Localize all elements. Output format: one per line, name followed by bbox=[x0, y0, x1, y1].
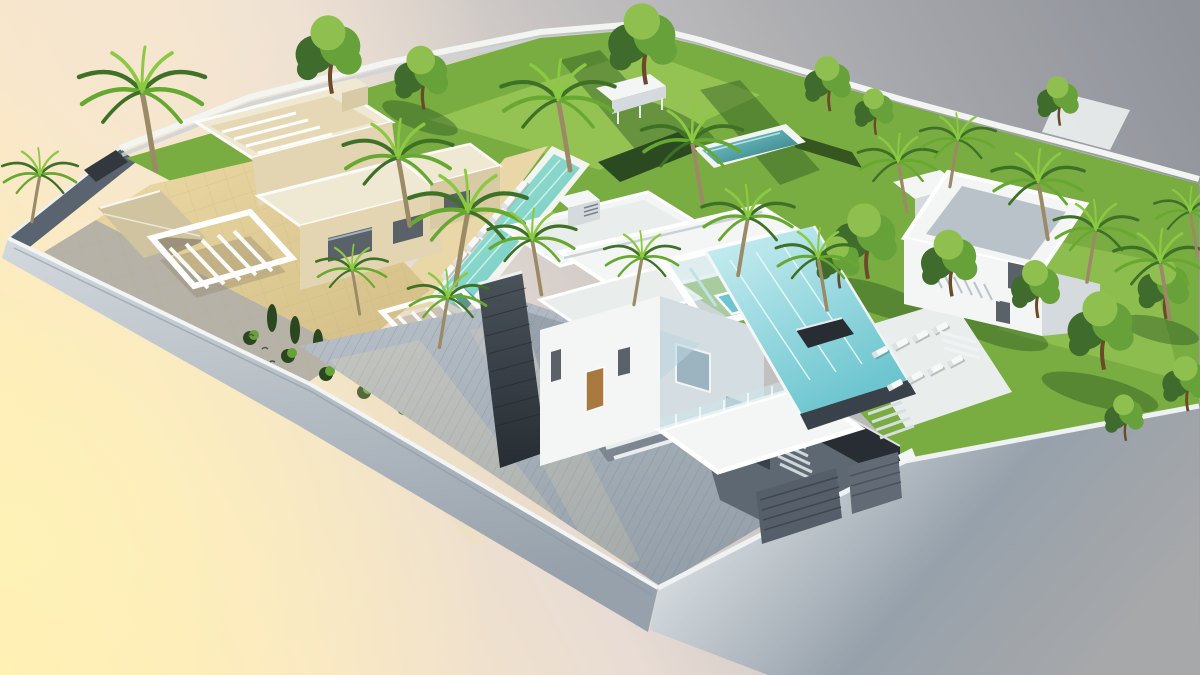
window bbox=[618, 347, 630, 376]
shrubs-part bbox=[267, 304, 277, 332]
window bbox=[996, 300, 1010, 324]
front-door bbox=[586, 367, 604, 412]
architectural-render bbox=[0, 0, 1200, 675]
shrubs-part bbox=[290, 316, 300, 344]
render-canvas bbox=[0, 0, 1200, 675]
window bbox=[551, 349, 561, 382]
